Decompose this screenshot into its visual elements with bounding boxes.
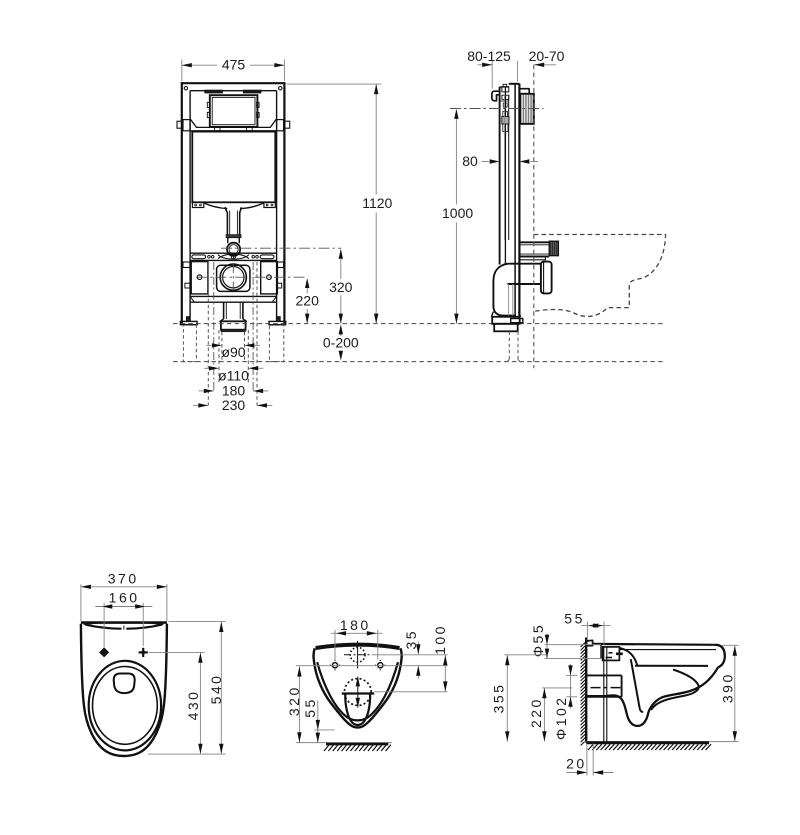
svg-text:540: 540: [208, 674, 224, 705]
svg-text:370: 370: [108, 570, 139, 586]
svg-text:220: 220: [296, 293, 320, 309]
svg-text:320: 320: [329, 279, 353, 295]
svg-text:ø90: ø90: [221, 344, 245, 360]
svg-text:355: 355: [490, 683, 506, 714]
svg-text:320: 320: [286, 685, 302, 716]
svg-text:100: 100: [432, 624, 448, 655]
svg-text:230: 230: [222, 397, 246, 413]
svg-text:430: 430: [185, 690, 201, 721]
svg-text:55: 55: [302, 697, 318, 718]
svg-text:1120: 1120: [362, 195, 392, 211]
svg-text:20-70: 20-70: [529, 48, 565, 64]
svg-text:Φ102: Φ102: [553, 695, 569, 740]
svg-text:80: 80: [462, 153, 478, 169]
svg-text:35: 35: [403, 629, 419, 650]
svg-text:180: 180: [340, 617, 371, 633]
svg-text:1000: 1000: [442, 205, 473, 221]
svg-text:390: 390: [720, 672, 736, 703]
svg-text:475: 475: [222, 57, 246, 73]
svg-text:ø110: ø110: [218, 368, 249, 384]
svg-text:160: 160: [109, 590, 140, 606]
svg-text:80-125: 80-125: [467, 48, 511, 64]
svg-text:55: 55: [564, 611, 585, 627]
svg-text:20: 20: [566, 755, 587, 771]
svg-text:Φ55: Φ55: [530, 623, 546, 657]
svg-text:220: 220: [528, 697, 544, 728]
svg-text:0-200: 0-200: [323, 335, 359, 351]
